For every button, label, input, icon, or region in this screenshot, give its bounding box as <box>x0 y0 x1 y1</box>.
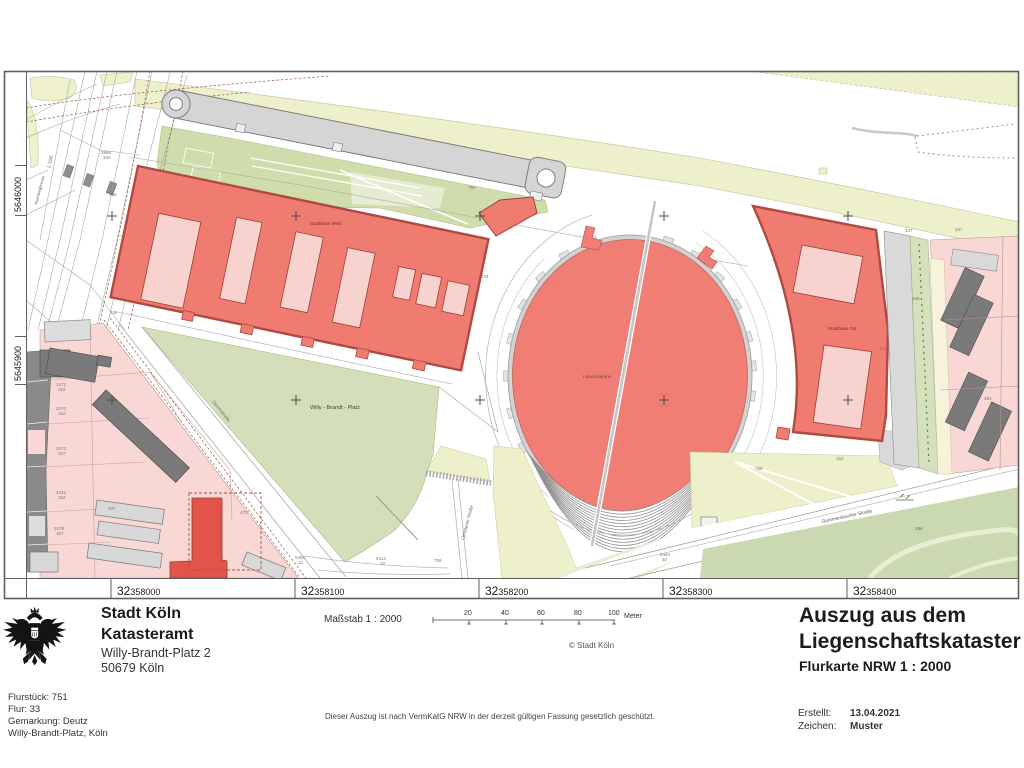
svg-text:Flur: 33: Flur: 33 <box>8 704 40 715</box>
svg-text:152: 152 <box>836 456 844 461</box>
svg-text:Gemarkung: Deutz: Gemarkung: Deutz <box>8 716 88 727</box>
svg-text:Auszug aus dem: Auszug aus dem <box>799 604 966 627</box>
svg-text:3442152: 3442152 <box>56 490 67 500</box>
svg-text:347: 347 <box>905 228 913 233</box>
svg-text:32358300: 32358300 <box>669 584 712 598</box>
svg-text:3885342: 3885342 <box>101 150 112 160</box>
svg-text:Liegenschaftskataster: Liegenschaftskataster <box>799 630 1021 653</box>
svg-text:Zeichen:: Zeichen: <box>798 721 836 732</box>
svg-text:349: 349 <box>966 326 974 331</box>
svg-text:Stadthaus Ost: Stadthaus Ost <box>828 326 857 331</box>
svg-text:32358100: 32358100 <box>301 584 344 598</box>
svg-text:100: 100 <box>608 610 620 617</box>
svg-text:Willy - Brandt - Platz: Willy - Brandt - Platz <box>310 405 360 411</box>
svg-text:32358400: 32358400 <box>853 584 896 598</box>
svg-text:756: 756 <box>434 558 442 563</box>
svg-text:758: 758 <box>755 466 763 471</box>
svg-text:750: 750 <box>468 185 476 190</box>
svg-text:543: 543 <box>880 346 888 351</box>
svg-text:© Stadt Köln: © Stadt Köln <box>569 641 614 650</box>
svg-text:Lanxessarena: Lanxessarena <box>583 374 612 379</box>
svg-text:5646000: 5646000 <box>13 177 23 212</box>
svg-text:32358200: 32358200 <box>485 584 528 598</box>
svg-text:3473157: 3473157 <box>56 446 67 456</box>
svg-text:2470152: 2470152 <box>56 406 67 416</box>
svg-text:80: 80 <box>574 610 582 617</box>
svg-text:13.04.2021: 13.04.2021 <box>850 708 900 719</box>
svg-text:60: 60 <box>537 610 545 617</box>
svg-text:Willy-Brandt-Platz 2: Willy-Brandt-Platz 2 <box>101 646 211 660</box>
svg-text:Stadthaus West: Stadthaus West <box>310 221 342 226</box>
svg-text:Flurkarte NRW 1 : 2000: Flurkarte NRW 1 : 2000 <box>799 658 951 674</box>
svg-text:5645900: 5645900 <box>13 346 23 381</box>
svg-text:348: 348 <box>912 296 920 301</box>
svg-text:20: 20 <box>464 610 472 617</box>
svg-text:1472152: 1472152 <box>56 382 67 392</box>
svg-text:Maßstab 1 : 2000: Maßstab 1 : 2000 <box>324 614 402 625</box>
svg-text:407: 407 <box>108 506 116 511</box>
svg-text:394: 394 <box>984 396 992 401</box>
svg-text:744: 744 <box>481 274 489 279</box>
svg-text:50679 Köln: 50679 Köln <box>101 661 164 675</box>
svg-text:Flurstück: 751: Flurstück: 751 <box>8 692 68 703</box>
svg-text:Muster: Muster <box>850 721 883 732</box>
svg-text:32358000: 32358000 <box>117 584 160 598</box>
svg-text:154: 154 <box>915 526 923 531</box>
svg-text:421: 421 <box>152 436 160 441</box>
svg-text:Erstellt:: Erstellt: <box>798 708 831 719</box>
svg-text:Katasteramt: Katasteramt <box>101 626 194 643</box>
svg-text:Stadt Köln: Stadt Köln <box>101 605 181 622</box>
svg-text:40: 40 <box>501 610 509 617</box>
svg-text:Willy-Brandt-Platz, Köln: Willy-Brandt-Platz, Köln <box>8 728 108 739</box>
svg-text:749: 749 <box>110 310 118 315</box>
svg-text:3478157: 3478157 <box>54 526 65 536</box>
svg-text:347: 347 <box>955 227 963 232</box>
svg-text:756: 756 <box>109 192 117 197</box>
svg-text:Dieser Auszug ist nach VermKat: Dieser Auszug ist nach VermKatG NRW in d… <box>325 712 655 721</box>
svg-text:472: 472 <box>240 510 248 515</box>
svg-text:Meter: Meter <box>624 613 643 620</box>
